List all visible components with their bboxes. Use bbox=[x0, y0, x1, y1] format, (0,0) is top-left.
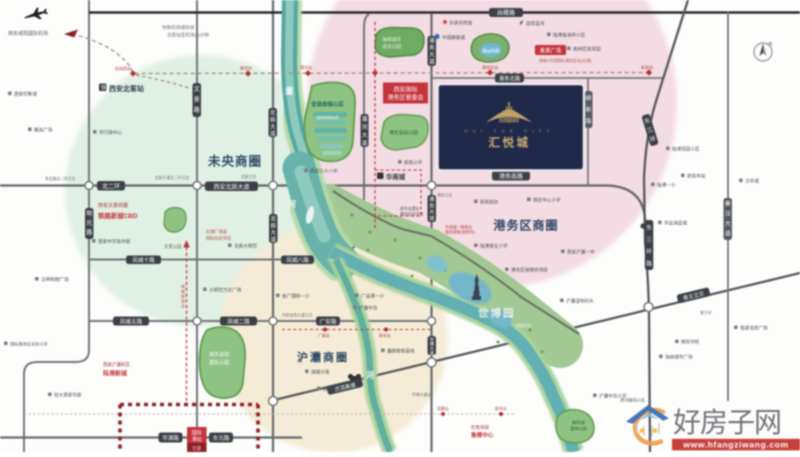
svg-text:明光路: 明光路 bbox=[86, 211, 92, 237]
svg-text:新寺站: 新寺站 bbox=[495, 406, 507, 411]
svg-text:港务区商圈: 港务区商圈 bbox=[494, 218, 559, 233]
svg-text:陆港第五小学: 陆港第五小学 bbox=[480, 243, 508, 250]
svg-text:港务立交: 港务立交 bbox=[437, 193, 452, 198]
svg-text:香湖湾小区: 香湖湾小区 bbox=[323, 386, 346, 393]
svg-text:渭河站: 渭河站 bbox=[300, 64, 312, 70]
svg-text:城市运动: 城市运动 bbox=[209, 351, 229, 358]
svg-text:湖城大境: 湖城大境 bbox=[311, 369, 330, 376]
svg-text:陆港花园小区: 陆港花园小区 bbox=[672, 146, 700, 153]
svg-text:汇悦城: 汇悦城 bbox=[489, 136, 531, 150]
svg-text:北辰大道: 北辰大道 bbox=[270, 109, 276, 138]
svg-text:滨河雅苑小区: 滨河雅苑小区 bbox=[620, 397, 645, 404]
svg-text:全运会核心区: 全运会核心区 bbox=[310, 100, 345, 108]
svg-text:邵平店遗址: 邵平店遗址 bbox=[400, 206, 420, 211]
svg-text:国际: 国际 bbox=[192, 430, 202, 437]
svg-text:自贸蓝湾: 自贸蓝湾 bbox=[526, 20, 545, 27]
svg-text:红旗厂改造: 红旗厂改造 bbox=[206, 228, 228, 235]
svg-text:陆港金海岸小区: 陆港金海岸小区 bbox=[553, 32, 586, 39]
svg-text:文景路: 文景路 bbox=[194, 85, 200, 114]
svg-text:国际港务区实验小学: 国际港务区实验小学 bbox=[10, 341, 48, 348]
svg-text:港站: 港站 bbox=[192, 436, 202, 443]
svg-text:西安文景商圈: 西安文景商圈 bbox=[98, 202, 128, 209]
svg-text:大明宫万达广场: 大明宫万达广场 bbox=[209, 287, 242, 294]
svg-text:北二环: 北二环 bbox=[102, 182, 120, 190]
svg-text:香王村: 香王村 bbox=[700, 310, 712, 315]
svg-text:北辰大道: 北辰大道 bbox=[270, 215, 276, 244]
svg-text:西安咸阳国际机场: 西安咸阳国际机场 bbox=[8, 30, 48, 37]
svg-text:港务大道: 港务大道 bbox=[429, 37, 435, 66]
svg-text:西安印象城: 西安印象城 bbox=[14, 91, 37, 98]
svg-text:杨庄中心小学: 杨庄中心小学 bbox=[533, 197, 561, 204]
svg-text:游船码头: 游船码头 bbox=[516, 322, 532, 328]
svg-text:凤城二路: 凤城二路 bbox=[227, 317, 250, 325]
svg-text:秦宫站: 秦宫站 bbox=[240, 65, 252, 71]
svg-text:铁: 铁 bbox=[101, 84, 107, 92]
svg-text:在建: 在建 bbox=[192, 445, 201, 452]
svg-text:华远海蓝城: 华远海蓝城 bbox=[664, 220, 687, 227]
svg-text:世博园: 世博园 bbox=[478, 307, 516, 320]
svg-text:港务运动公园: 港务运动公园 bbox=[389, 129, 418, 136]
svg-text:北辰立交: 北辰立交 bbox=[241, 174, 256, 179]
svg-text:恒大翡翠华庭: 恒大翡翠华庭 bbox=[54, 392, 82, 399]
svg-text:柳新路: 柳新路 bbox=[586, 94, 592, 125]
svg-text:海纳城市广场: 海纳城市广场 bbox=[665, 354, 693, 361]
svg-text:华清路: 华清路 bbox=[162, 434, 179, 442]
svg-text:雁鸣湖: 雁鸣湖 bbox=[572, 419, 585, 426]
svg-text:北客站至机场25分钟: 北客站至机场25分钟 bbox=[167, 32, 209, 39]
svg-text:市行政中心: 市行政中心 bbox=[99, 129, 122, 136]
svg-text:港务北路: 港务北路 bbox=[499, 74, 521, 82]
svg-text:西安浐灞一中: 西安浐灞一中 bbox=[567, 249, 595, 256]
svg-text:西安中学高中部: 西安中学高中部 bbox=[98, 238, 131, 245]
svg-text:奥林匹克花园: 奥林匹克花园 bbox=[573, 46, 601, 53]
svg-text:西安国际: 西安国际 bbox=[393, 86, 417, 94]
svg-text:陆港新城: 陆港新城 bbox=[103, 370, 127, 378]
svg-text:汉神购物广场: 汉神购物广场 bbox=[41, 276, 69, 283]
svg-text:中国酵素城: 中国酵素城 bbox=[442, 34, 465, 41]
svg-text:广泰站: 广泰站 bbox=[318, 333, 330, 338]
svg-text:售楼中心: 售楼中心 bbox=[471, 431, 494, 439]
svg-text:国际社区项目: 国际社区项目 bbox=[206, 235, 231, 242]
svg-text:未央商圈: 未央商圈 bbox=[207, 154, 262, 169]
svg-text:西安北辰大道: 西安北辰大道 bbox=[213, 183, 249, 191]
svg-text:遗址公园: 遗址公园 bbox=[209, 359, 229, 366]
svg-text:广运潭一小: 广运潭一小 bbox=[361, 293, 384, 300]
svg-text:海绵城市: 海绵城市 bbox=[382, 36, 401, 43]
svg-text:尚稷路: 尚稷路 bbox=[497, 9, 515, 17]
svg-text:新筑车站: 新筑车站 bbox=[687, 173, 706, 180]
svg-text:灞柳教育基地: 灞柳教育基地 bbox=[387, 348, 415, 355]
svg-text:地铁规划中: 地铁规划中 bbox=[181, 283, 185, 309]
svg-text:世博大道站: 世博大道站 bbox=[412, 392, 431, 397]
svg-text:港务南路: 港务南路 bbox=[499, 172, 523, 180]
svg-text:港务区站: 港务区站 bbox=[482, 64, 498, 70]
svg-text:好房子网: 好房子网 bbox=[673, 407, 781, 438]
svg-text:东元路: 东元路 bbox=[213, 434, 230, 442]
svg-text:文景公园: 文景公园 bbox=[164, 243, 182, 250]
svg-text:赛高广场: 赛高广场 bbox=[34, 127, 53, 134]
svg-text:试点公园: 试点公园 bbox=[382, 43, 401, 50]
svg-text:中欧金色大道立交: 中欧金色大道立交 bbox=[282, 313, 313, 318]
svg-text:浐灞湿地码头: 浐灞湿地码头 bbox=[566, 298, 594, 305]
svg-text:电建洺悦广场: 电建洺悦广场 bbox=[740, 325, 768, 332]
svg-text:湿地公园: 湿地公园 bbox=[570, 425, 587, 432]
svg-text:港务大道: 港务大道 bbox=[429, 195, 435, 222]
svg-text:北辰大明宫: 北辰大明宫 bbox=[234, 243, 257, 250]
svg-text:3000000㎡: 3000000㎡ bbox=[316, 114, 339, 120]
svg-text:凤城十路: 凤城十路 bbox=[132, 256, 155, 264]
svg-text:河: 河 bbox=[288, 199, 296, 209]
svg-text:华清学府城: 华清学府城 bbox=[449, 20, 472, 27]
svg-text:地铁3号线国际港务区站(在建): 地铁3号线国际港务区站(在建) bbox=[539, 57, 593, 63]
svg-text:金广国际一小: 金广国际一小 bbox=[282, 293, 310, 300]
svg-text:机场西站: 机场西站 bbox=[115, 65, 131, 71]
svg-text:港务区保障房项目: 港务区保障房项目 bbox=[511, 267, 548, 274]
svg-text:新筑街办: 新筑街办 bbox=[480, 199, 499, 206]
svg-text:凤城五路: 凤城五路 bbox=[120, 317, 143, 325]
svg-text:朱宏路北二环立交: 朱宏路北二环立交 bbox=[45, 176, 76, 181]
svg-text:www.hfangziwang.com: www.hfangziwang.com bbox=[682, 440, 789, 450]
svg-text:灞: 灞 bbox=[285, 86, 293, 96]
svg-text:新寺站: 新寺站 bbox=[379, 333, 391, 338]
svg-text:漕运明渠: 漕运明渠 bbox=[482, 48, 500, 55]
svg-text:北辰大道北二环立交: 北辰大道北二环立交 bbox=[155, 175, 189, 180]
svg-text:西安北客站: 西安北客站 bbox=[109, 84, 144, 93]
svg-text:明华学校: 明华学校 bbox=[681, 339, 700, 346]
svg-text:凤城八路: 凤城八路 bbox=[286, 256, 309, 264]
svg-text:西安浐灞新区: 西安浐灞新区 bbox=[103, 361, 130, 368]
svg-text:新筑小学: 新筑小学 bbox=[404, 159, 423, 166]
svg-text:广安路: 广安路 bbox=[320, 317, 337, 325]
svg-text:奥特莱斯(规划中): 奥特莱斯(规划中) bbox=[445, 230, 476, 235]
svg-text:陆港一小: 陆港一小 bbox=[657, 182, 676, 189]
svg-text:汉华城: 汉华城 bbox=[745, 178, 759, 185]
svg-text:浐灞半岛: 浐灞半岛 bbox=[359, 305, 378, 312]
svg-text:港务区管委会: 港务区管委会 bbox=[387, 94, 423, 102]
svg-text:西安三十八中: 西安三十八中 bbox=[310, 168, 338, 175]
svg-text:沪灞商圈: 沪灞商圈 bbox=[297, 350, 349, 364]
svg-text:N: N bbox=[769, 42, 773, 48]
svg-text:奥莱广场: 奥莱广场 bbox=[540, 46, 562, 54]
svg-text:铁路新城CBD: 铁路新城CBD bbox=[98, 211, 138, 220]
svg-text:双寨站: 双寨站 bbox=[437, 406, 449, 411]
svg-text:华南城: 华南城 bbox=[386, 172, 406, 181]
svg-text:河: 河 bbox=[366, 370, 374, 380]
svg-text:在售项目: 在售项目 bbox=[471, 424, 489, 431]
svg-text:地铁机场城际线: 地铁机场城际线 bbox=[162, 24, 195, 31]
svg-text:HUI YUE CITY: HUI YUE CITY bbox=[464, 129, 554, 134]
svg-text:新筑站: 新筑站 bbox=[641, 64, 653, 70]
